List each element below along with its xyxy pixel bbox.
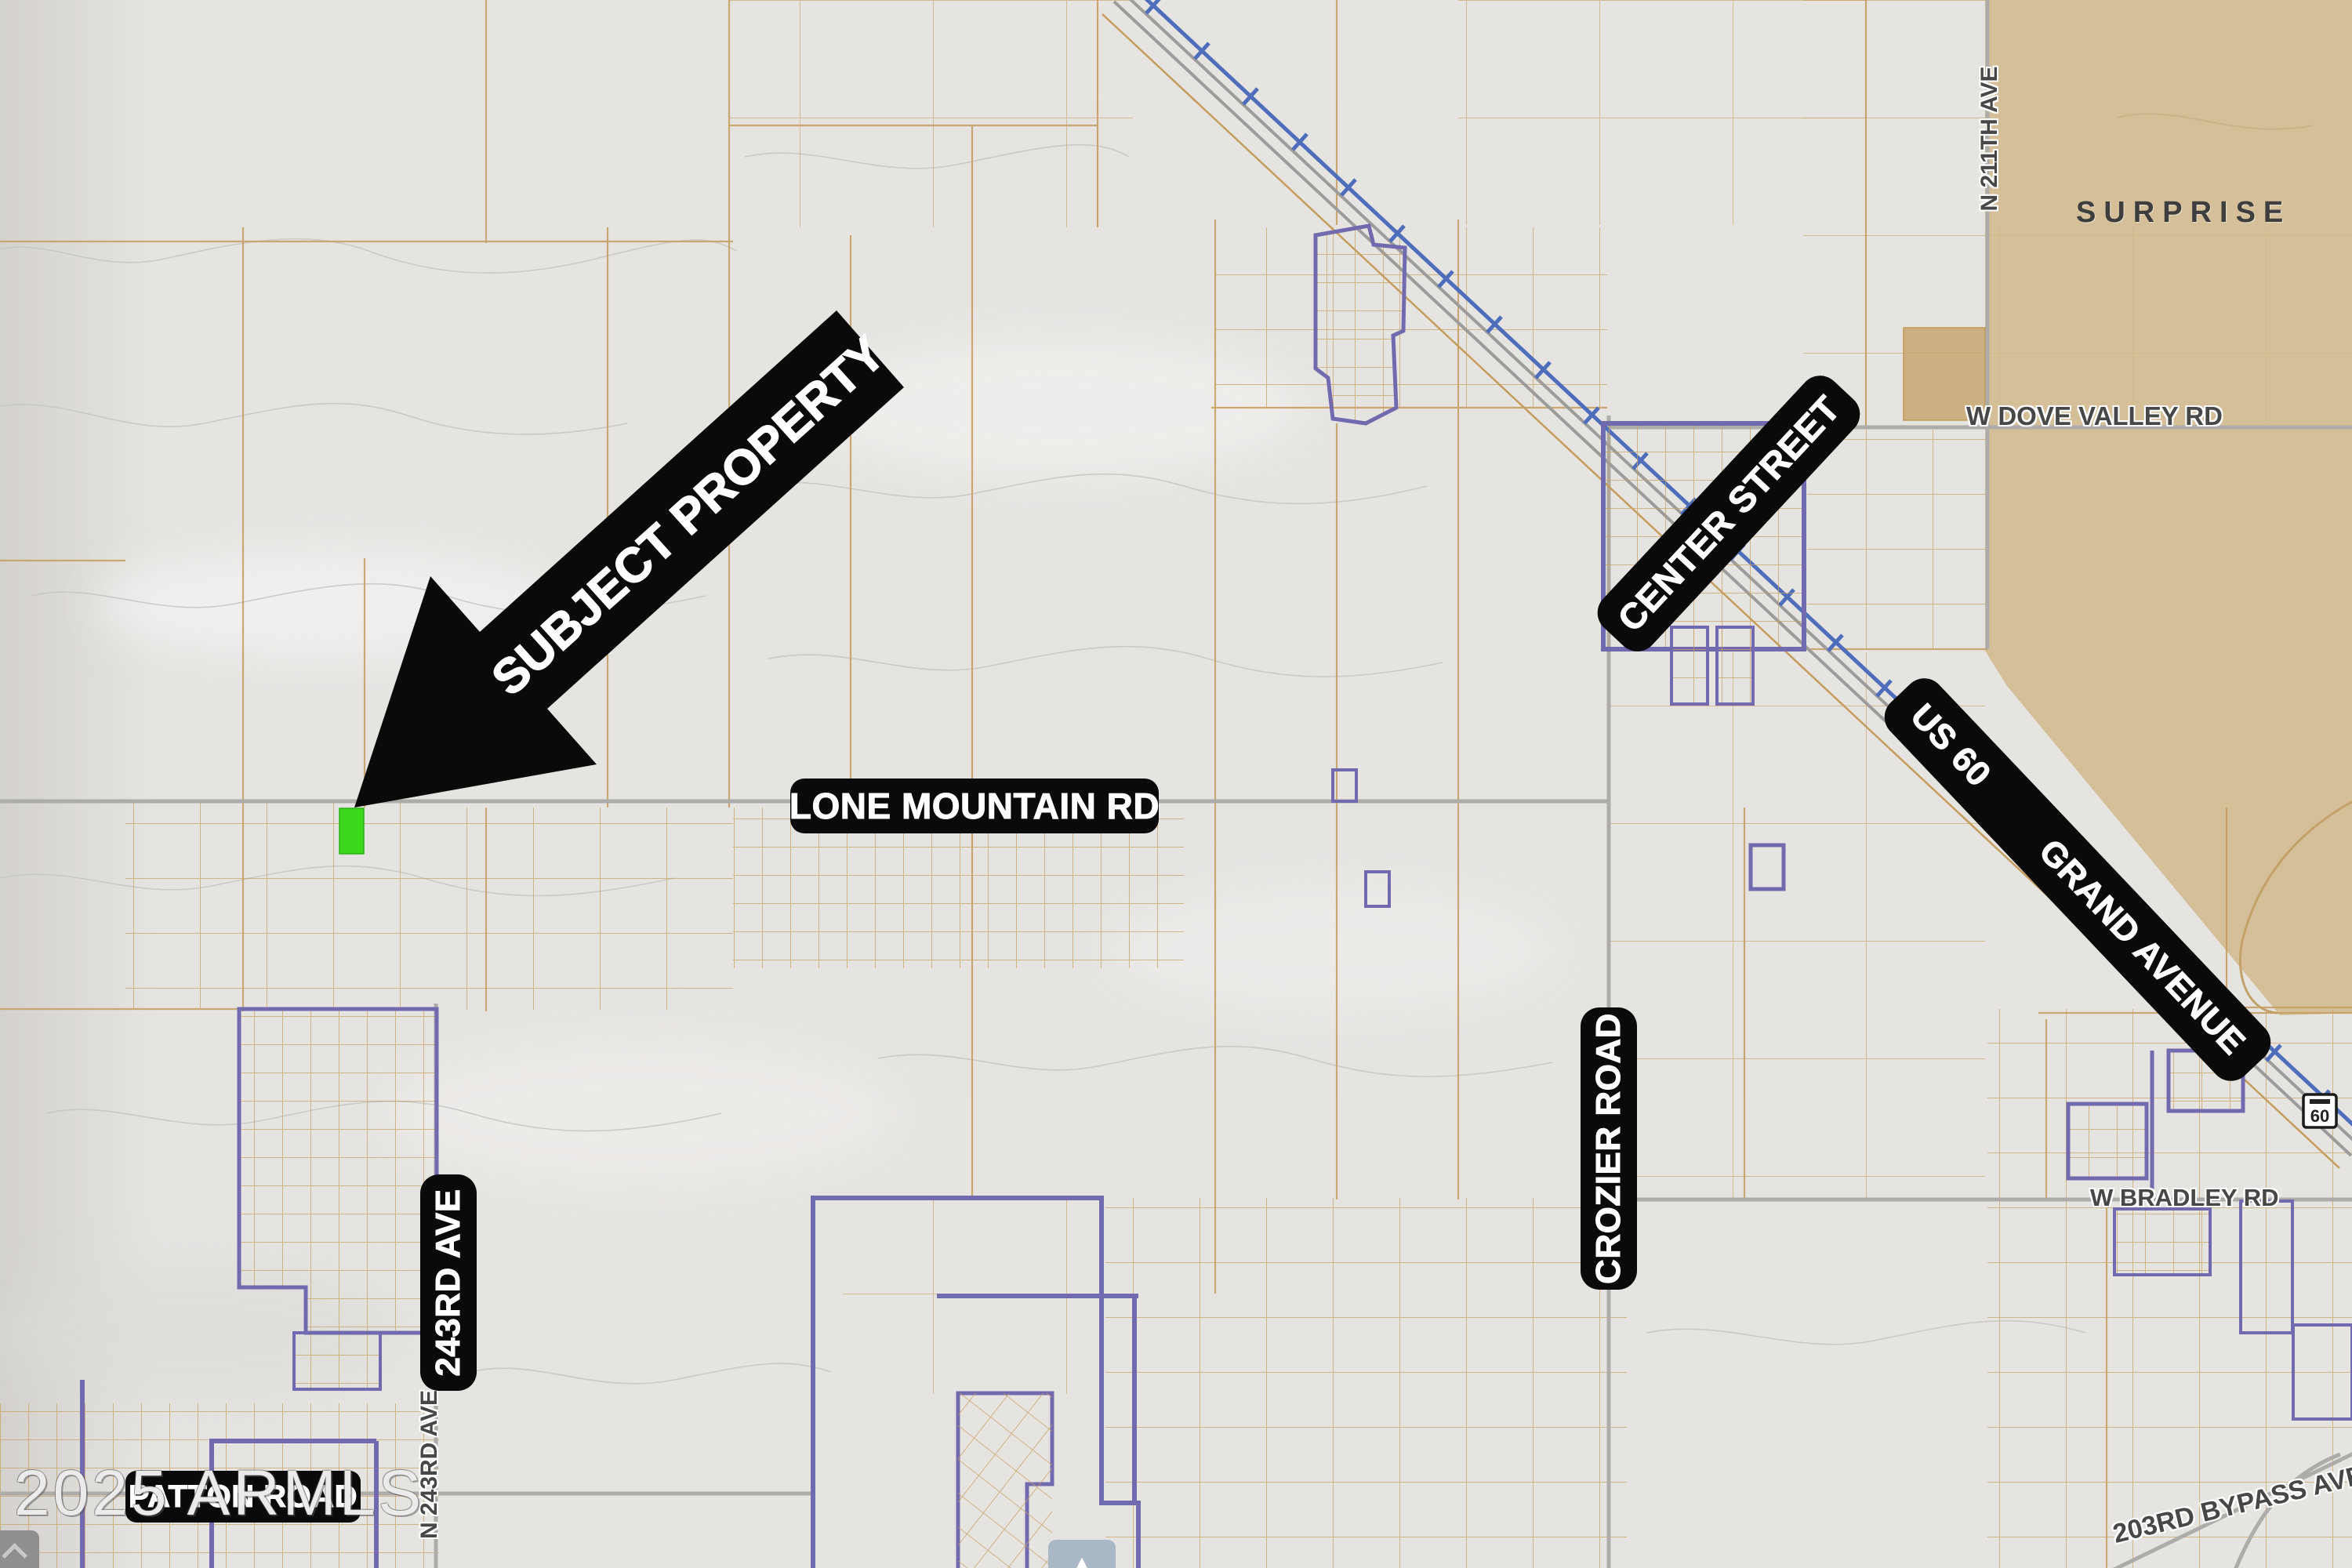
street-label-211th-ave: N 211TH AVE	[1976, 53, 2008, 225]
chevron-up-icon	[2, 1543, 27, 1568]
svg-text:60: 60	[2310, 1106, 2329, 1126]
us60-route-shield-icon: 60	[2303, 1094, 2336, 1127]
parcel-map: 60 SUBJECT PROPERTY LONE MOUNTAIN RD CEN…	[0, 0, 2352, 1568]
watermark: 2025 ARMLS	[14, 1457, 424, 1530]
road-banner-243rd-ave: 243RD AVE	[420, 1174, 477, 1391]
road-banner-lone-mountain: LONE MOUNTAIN RD	[790, 779, 1159, 833]
street-label-dove-valley: W DOVE VALLEY RD	[1966, 401, 2223, 431]
pan-up-button[interactable]: ▲	[1048, 1540, 1116, 1568]
subject-property-parcel[interactable]	[339, 808, 364, 854]
city-label-surprise: SURPRISE	[2076, 196, 2291, 230]
pan-up-icon: ▲	[1071, 1551, 1093, 1568]
map-corner-control[interactable]	[0, 1530, 39, 1568]
road-banner-crozier-road: CROZIER ROAD	[1581, 1007, 1637, 1290]
street-label-bradley: W BRADLEY RD	[2090, 1184, 2279, 1212]
